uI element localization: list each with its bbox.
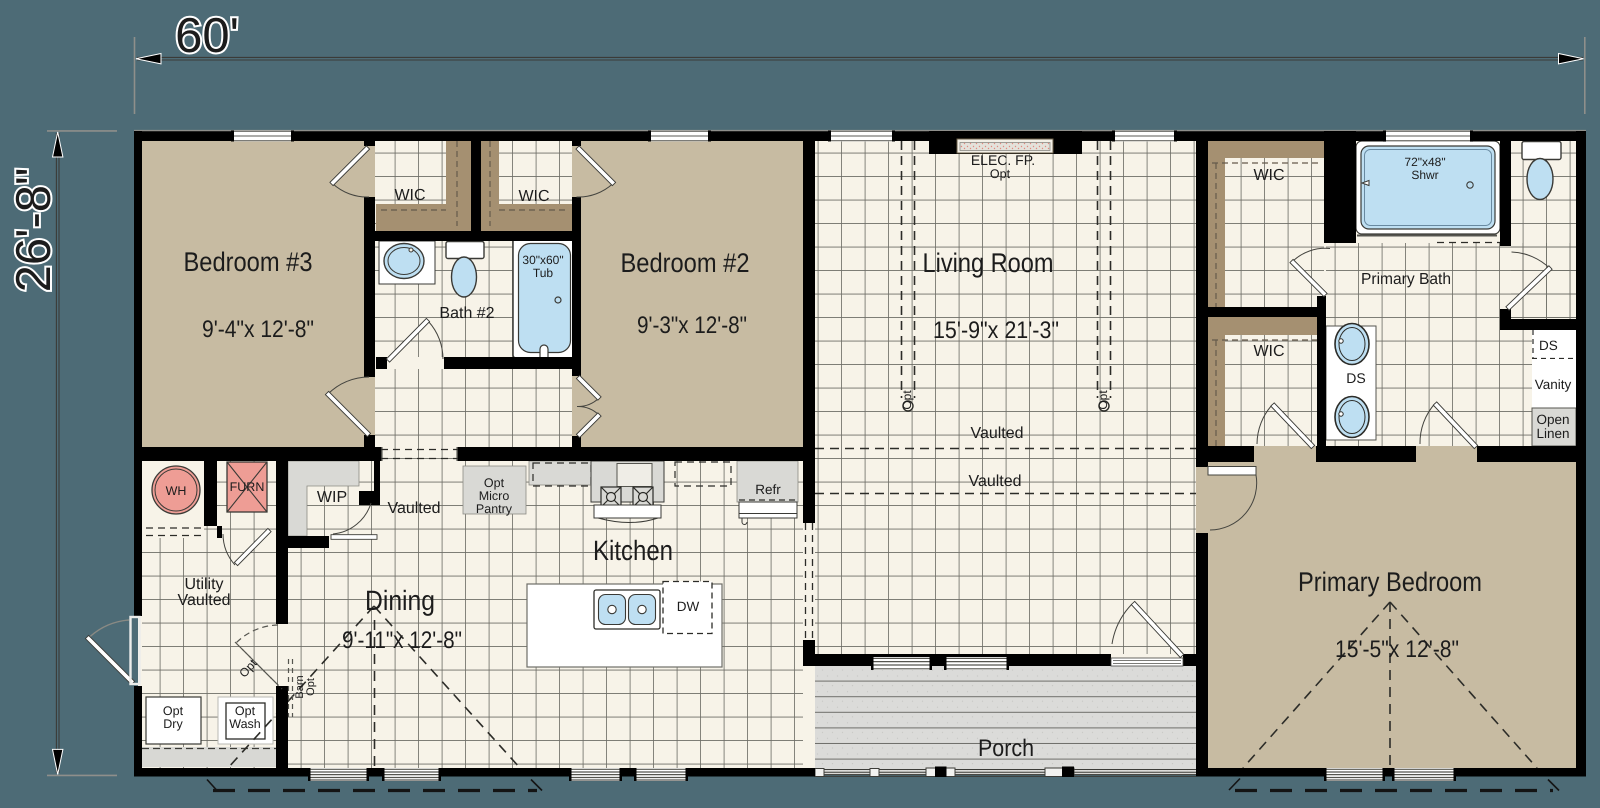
- svg-text:30"x60": 30"x60": [522, 253, 563, 267]
- svg-text:Kitchen: Kitchen: [593, 535, 673, 566]
- svg-text:Opt: Opt: [163, 704, 184, 718]
- svg-text:Bedroom #2: Bedroom #2: [621, 248, 750, 278]
- svg-text:15'-9"x 21'-3": 15'-9"x 21'-3": [933, 317, 1059, 344]
- svg-text:Living Room: Living Room: [923, 248, 1054, 278]
- svg-text:DW: DW: [677, 599, 700, 614]
- svg-text:Linen: Linen: [1536, 426, 1569, 441]
- svg-text:Wash: Wash: [229, 717, 261, 731]
- svg-text:DS: DS: [1539, 338, 1558, 353]
- svg-text:Opt: Opt: [990, 167, 1011, 181]
- svg-text:Tub: Tub: [533, 266, 554, 280]
- svg-text:72"x48": 72"x48": [1404, 155, 1445, 169]
- svg-text:WH: WH: [166, 484, 187, 498]
- svg-text:9'-4"x 12'-8": 9'-4"x 12'-8": [202, 316, 314, 343]
- svg-text:60': 60': [175, 9, 239, 63]
- svg-text:WIC: WIC: [1253, 343, 1284, 360]
- svg-text:Pantry: Pantry: [476, 502, 513, 516]
- svg-text:ELEC. FP.: ELEC. FP.: [971, 152, 1035, 168]
- svg-text:FURN: FURN: [230, 480, 265, 494]
- svg-text:Vaulted: Vaulted: [968, 473, 1021, 490]
- svg-text:DS: DS: [1346, 370, 1365, 386]
- svg-text:Vaulted: Vaulted: [387, 500, 440, 517]
- svg-text:Primary Bath: Primary Bath: [1361, 271, 1451, 288]
- svg-text:Refr: Refr: [755, 482, 781, 497]
- svg-text:Dry: Dry: [163, 717, 183, 731]
- svg-text:Vaulted: Vaulted: [177, 592, 230, 609]
- svg-text:Dining: Dining: [365, 585, 435, 616]
- svg-text:Micro: Micro: [479, 489, 510, 503]
- svg-text:Vaulted: Vaulted: [970, 425, 1023, 442]
- svg-text:Primary Bedroom: Primary Bedroom: [1298, 567, 1482, 597]
- svg-text:15'-5"x 12'-8": 15'-5"x 12'-8": [1335, 636, 1459, 663]
- svg-text:Opt: Opt: [235, 704, 256, 718]
- svg-text:Open: Open: [1536, 412, 1569, 427]
- svg-text:Opt: Opt: [484, 476, 505, 490]
- svg-text:Vanity: Vanity: [1535, 377, 1572, 392]
- svg-text:WIP: WIP: [317, 489, 347, 506]
- svg-text:26'-8": 26'-8": [7, 168, 61, 293]
- svg-text:9'-11"x 12'-8": 9'-11"x 12'-8": [342, 627, 462, 654]
- svg-text:WIC: WIC: [394, 187, 425, 204]
- svg-text:Opt: Opt: [305, 678, 317, 696]
- svg-text:WIC: WIC: [518, 188, 549, 205]
- svg-text:9'-3"x 12'-8": 9'-3"x 12'-8": [637, 312, 747, 339]
- svg-text:Bath #2: Bath #2: [439, 305, 494, 322]
- svg-text:WIC: WIC: [1253, 167, 1284, 184]
- svg-text:Porch: Porch: [978, 735, 1034, 762]
- svg-text:Bedroom #3: Bedroom #3: [184, 247, 313, 277]
- svg-text:Opt: Opt: [1096, 390, 1110, 410]
- svg-text:Opt: Opt: [900, 390, 914, 410]
- svg-text:Utility: Utility: [184, 576, 223, 593]
- svg-text:Shwr: Shwr: [1411, 168, 1438, 182]
